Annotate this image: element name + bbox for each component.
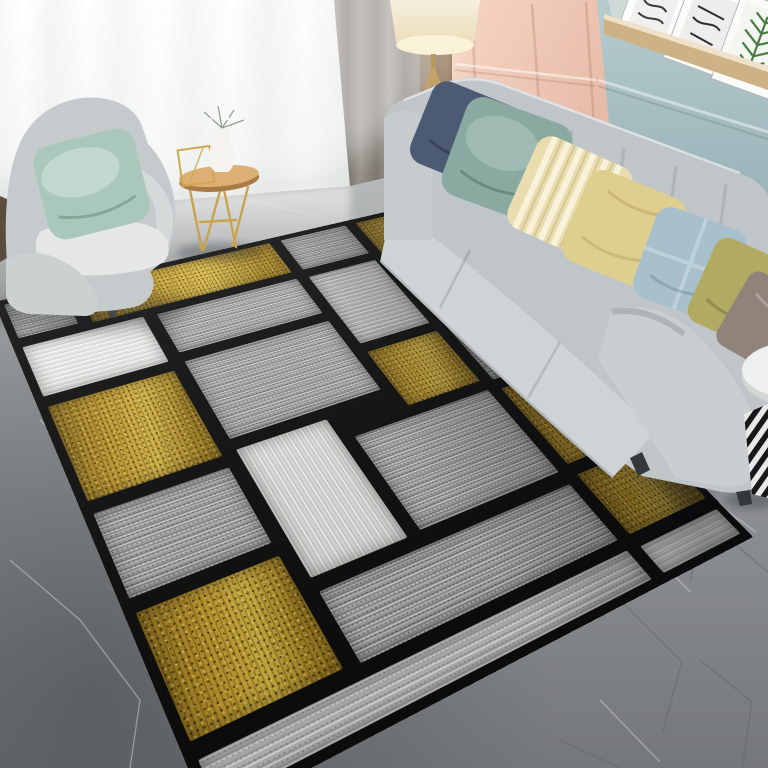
living-room-photo	[0, 0, 768, 768]
room-background	[0, 0, 768, 768]
